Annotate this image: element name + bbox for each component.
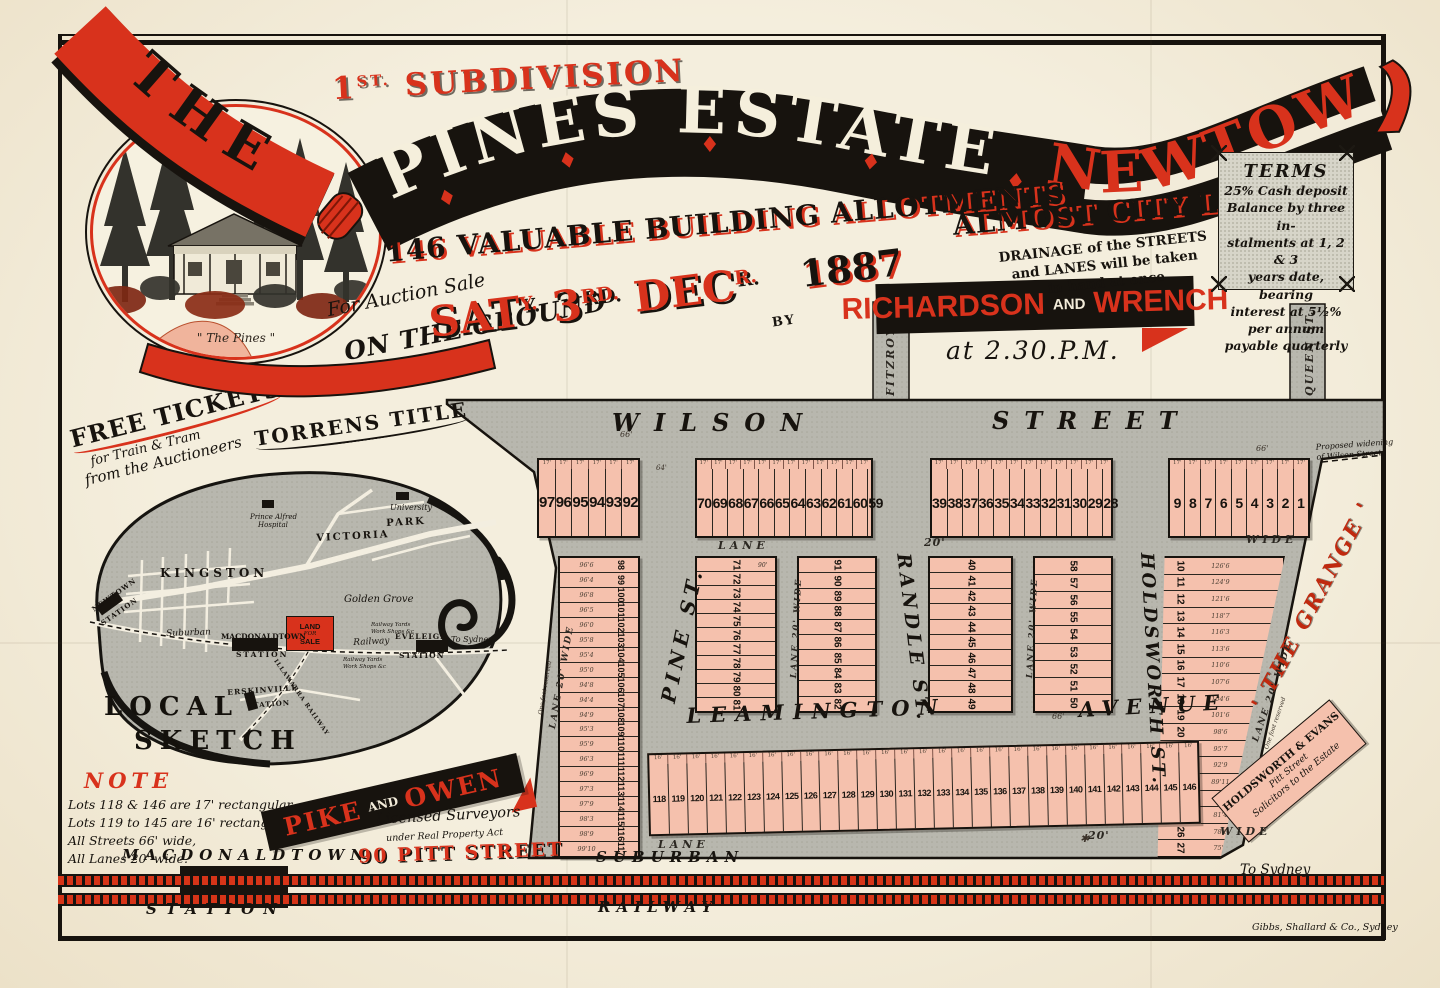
- lot-29: 29: [1087, 469, 1103, 536]
- street-label: STREET: [992, 406, 1192, 435]
- lot-row: 10096'8: [560, 587, 638, 602]
- lot-98: 98: [616, 560, 626, 570]
- lot-110: 110: [616, 737, 626, 752]
- lot-width-marks: 17'17'17'17'17'17': [539, 460, 638, 469]
- terms-line: 25% Cash deposit: [1223, 182, 1349, 199]
- frame-right: [1381, 34, 1386, 940]
- lot-93: 93: [605, 469, 622, 536]
- lot-dimension: 95'8: [579, 636, 593, 644]
- lot-7: 7: [1200, 469, 1215, 536]
- lot-row: 79: [697, 669, 775, 683]
- to-sydney-sketch-label: To Sydney: [451, 635, 493, 644]
- auction-poster: LAND FOR SALE UniversityPrince AlfredHos…: [0, 0, 1440, 988]
- lot-row: 53: [1035, 643, 1111, 660]
- lot-96: 96: [555, 469, 572, 536]
- prince-alfred-sketch-label: Prince Alfred: [250, 513, 297, 521]
- lot-dimension: 124'9: [1211, 578, 1229, 586]
- vignette-caption: " The Pines ": [197, 331, 275, 345]
- lot-100: 100: [616, 587, 626, 602]
- lot-124: 124: [762, 761, 783, 831]
- lot-120: 120: [686, 763, 707, 833]
- lot-130: 130: [876, 759, 897, 829]
- lot-26: 26: [1174, 826, 1185, 837]
- 66-label: 66': [1256, 444, 1268, 453]
- lot-row: 10794'4: [560, 692, 638, 707]
- vignette-house: [168, 214, 302, 306]
- lot-dimension: 94'8: [579, 681, 593, 689]
- wide-label: WIDE: [1246, 533, 1297, 546]
- lot-125: 125: [781, 761, 802, 831]
- vignette-ring: [92, 106, 380, 358]
- lot-dimension: 99'10: [577, 845, 595, 853]
- railway-label-station: STATION: [146, 900, 286, 918]
- lot-40: 40: [965, 560, 976, 571]
- lot-row: 51: [1035, 677, 1111, 694]
- lot-118: 118: [649, 764, 669, 834]
- lot-86: 86: [832, 637, 843, 648]
- lot-64: 64: [789, 469, 805, 536]
- lot-block-pine-west-column: 9896'69996'410096'810196'510296'010395'8…: [558, 556, 640, 858]
- lot-131: 131: [895, 758, 916, 828]
- lot-63: 63: [805, 469, 821, 536]
- lot-105: 105: [616, 662, 626, 677]
- lot-129: 129: [857, 759, 878, 829]
- lot-block-wilson-row-west: 17'17'17'17'17'17'979695949392: [537, 458, 640, 538]
- lot-111: 111: [616, 752, 626, 766]
- lot-95: 95: [571, 469, 588, 536]
- lot-139: 139: [1046, 755, 1067, 825]
- lot-dimension: 92'9: [1213, 761, 1227, 769]
- lot-116: 116: [616, 827, 626, 842]
- svg-text:♦: ♦: [555, 147, 580, 176]
- lot-115: 115: [616, 812, 626, 827]
- lot-101: 101: [616, 602, 626, 617]
- lot-43: 43: [965, 606, 976, 617]
- lot-block-wilson-row-pine-randle: 17'17'17'17'17'17'17'17'17'17'17'17'7069…: [695, 458, 873, 538]
- lot-79: 79: [731, 671, 742, 682]
- land-for-sale-line: LAND: [300, 622, 321, 631]
- lot-55: 55: [1068, 612, 1079, 623]
- lot-1: 1: [1293, 469, 1308, 536]
- railway-track: [58, 874, 1384, 887]
- university-block: [396, 492, 409, 500]
- lot-66: 66: [758, 469, 774, 536]
- lot-138: 138: [1027, 755, 1048, 825]
- lot-103: 103: [616, 632, 626, 647]
- lot-dimension: 110'6: [1211, 661, 1229, 669]
- sale-time: at 2.30.P.M.: [946, 336, 1120, 365]
- lot-104: 104: [616, 647, 626, 662]
- lot-4: 4: [1246, 469, 1261, 536]
- lot-8: 8: [1184, 469, 1199, 536]
- terms-lines: 25% Cash depositBalance by three in-stal…: [1223, 182, 1349, 355]
- lot-99: 99: [616, 575, 626, 585]
- lot-38: 38: [947, 469, 963, 536]
- note-line: All Lanes 20' wide.: [68, 850, 297, 868]
- lot-44: 44: [965, 621, 976, 632]
- lot-dimension: 96'3: [579, 755, 593, 763]
- lot-row: 89: [799, 588, 875, 603]
- wilson-label: WILSON: [612, 408, 817, 437]
- lot-row: 85: [799, 649, 875, 664]
- lot-122: 122: [724, 762, 745, 832]
- terms-line: interest at 5½% per annum: [1223, 303, 1349, 338]
- lot-row: 14116'3: [1147, 623, 1283, 640]
- lot-block-randle-lane-block: 40414243444546474849: [928, 556, 1013, 713]
- lot-80: 80: [731, 685, 742, 696]
- lot-49: 49: [965, 698, 976, 709]
- station-sketch-label: STATION: [236, 650, 288, 659]
- lot-row: 9996'4: [560, 572, 638, 587]
- lot-row: 91: [799, 558, 875, 572]
- printer-credit: Gibbs, Shallard & Co., Sydney: [1252, 922, 1398, 933]
- lot-row: 43: [930, 603, 1011, 618]
- lot-121: 121: [705, 763, 726, 833]
- lot-45: 45: [965, 637, 976, 648]
- lot-68: 68: [727, 469, 743, 536]
- vignette-outer-ring: [86, 100, 386, 364]
- lot-91: 91: [832, 560, 843, 571]
- lot-87: 87: [832, 621, 843, 632]
- sale-month-sup: R.: [733, 265, 758, 290]
- lot-134: 134: [951, 757, 972, 827]
- the-ribbon-roll: [312, 187, 368, 244]
- station-sketch-label: STATION: [399, 651, 444, 660]
- lot-109: 109: [616, 722, 626, 737]
- lot-row: 74: [697, 599, 775, 613]
- lot-92: 92: [621, 469, 638, 536]
- lot-width-marks: 17'17'17'17'17'17'17'17'17'17'17'17': [697, 460, 871, 469]
- auctioneer-and: AND: [1053, 295, 1086, 313]
- lot-row: 10694'8: [560, 677, 638, 692]
- lot-85: 85: [832, 652, 843, 663]
- victoria-sketch-label: VICTORIA: [316, 529, 390, 544]
- lot-dimension: 118'7: [1211, 612, 1229, 620]
- lot-97: 97: [539, 469, 555, 536]
- lot-row: 11698'9: [560, 826, 638, 841]
- macdonaldtown-sketch-label: MACDONALDTOWN: [221, 632, 306, 641]
- lot-row: 80: [697, 683, 775, 697]
- lot-135: 135: [970, 757, 991, 827]
- garden-path: [140, 321, 252, 358]
- lot-88: 88: [832, 606, 843, 617]
- lot-dimension: 95'0: [579, 666, 593, 674]
- lot-62: 62: [821, 469, 837, 536]
- lot-row: 73: [697, 585, 775, 599]
- kingston-sketch-label: KINGSTON: [160, 566, 268, 580]
- lot-11: 11: [1174, 577, 1185, 588]
- lot-61: 61: [836, 469, 852, 536]
- lot-row: 10894'9: [560, 707, 638, 722]
- railway-yards-sketch-label: Railway Yards: [343, 657, 382, 663]
- lot-row: 56: [1035, 591, 1111, 608]
- lot-14: 14: [1174, 627, 1185, 638]
- railway-label-railway: RAILWAY: [598, 898, 718, 916]
- lot-block-wilson-row-east: 17'17'17'17'17'17'17'17'17'987654321: [1168, 458, 1310, 538]
- lot-block-lane-holdsworth-block: 585756555453525150: [1033, 556, 1113, 713]
- lot-row: 75: [697, 613, 775, 627]
- lot-block-lane-randle-block: 91908988878685848382: [797, 556, 877, 713]
- svg-text:THE: THE: [117, 39, 293, 190]
- lot-72: 72: [731, 573, 742, 584]
- by-word: BY: [771, 312, 797, 330]
- lot-17: 17: [1174, 677, 1185, 688]
- university-sketch-label: University: [390, 503, 432, 512]
- lot-32: 32: [1040, 469, 1056, 536]
- frame-top-thin: [58, 34, 1384, 36]
- lot-block-wilson-row-randle-holdsworth: 17'17'17'17'17'17'17'17'17'17'17'17'3938…: [930, 458, 1113, 538]
- lot-row: 45: [930, 634, 1011, 649]
- lot-142: 142: [1103, 754, 1124, 824]
- lot-15: 15: [1174, 643, 1185, 654]
- lot-dimension: 98'6: [1213, 728, 1227, 736]
- note-lines: Lots 118 & 146 are 17' rectangular.Lots …: [68, 796, 297, 869]
- lot-dimension: 98'9: [579, 830, 593, 838]
- lot-row: 10196'5: [560, 602, 638, 617]
- terms-line: stalments at 1, 2 & 3: [1223, 234, 1349, 269]
- the-ribbon-text: THE: [117, 39, 293, 190]
- lot-row: 76: [697, 627, 775, 641]
- lot-133: 133: [932, 757, 953, 827]
- lot-53: 53: [1068, 646, 1079, 657]
- lot-3: 3: [1262, 469, 1277, 536]
- lot-row: 11497'9: [560, 796, 638, 811]
- lot-46: 46: [965, 652, 976, 663]
- lot-row: 58: [1035, 558, 1111, 574]
- note-line: All Streets 66' wide,: [68, 832, 297, 850]
- railway-sketch-label: Railway: [353, 636, 390, 648]
- lot-row: 54: [1035, 625, 1111, 642]
- lot-37: 37: [962, 469, 978, 536]
- the-ribbon: [80, 30, 320, 205]
- lot-row: 77: [697, 641, 775, 655]
- terms-line: years date, bearing: [1223, 268, 1349, 303]
- lot-row: 72: [697, 571, 775, 585]
- hospital-sketch-label: Hospital: [258, 521, 288, 529]
- red-underscroll: [140, 340, 495, 396]
- lot-137: 137: [1008, 756, 1029, 826]
- lot-row: 12121'6: [1147, 590, 1283, 607]
- lot-20: 20: [1174, 726, 1185, 737]
- lot-74: 74: [731, 601, 742, 612]
- auctioneer-banner-tail: [1142, 328, 1188, 352]
- lot-row: 88: [799, 603, 875, 618]
- lot-dimension: 121'6: [1211, 595, 1229, 603]
- lot-dimension: 96'9: [579, 770, 593, 778]
- lot-67: 67: [743, 469, 759, 536]
- svg-text:NEWTOWN: NEWTOWN: [0, 0, 1375, 207]
- 66-label: 66': [620, 430, 632, 439]
- subdivision-heading: 1ST. SUBDIVISION: [331, 53, 686, 107]
- lot-row: 84: [799, 665, 875, 680]
- lot-row: 11095'9: [560, 736, 638, 751]
- lot-dimension: 113'6: [1211, 645, 1229, 653]
- 20-label: 20': [924, 536, 946, 549]
- frame-left: [58, 34, 62, 940]
- lot-33: 33: [1024, 469, 1040, 536]
- work-shops-c-sketch-label: Work Shops &c: [343, 664, 386, 670]
- lot-row: 47: [930, 665, 1011, 680]
- lot-75: 75: [731, 615, 742, 626]
- lot-row: 41: [930, 572, 1011, 587]
- lot-39: 39: [932, 469, 947, 536]
- wide-label: WIDE: [1220, 825, 1271, 838]
- lot-70: 70: [697, 469, 712, 536]
- lot-128: 128: [838, 760, 859, 830]
- lot-123: 123: [743, 762, 764, 832]
- lot-73: 73: [731, 587, 742, 598]
- lot-width-marks: 17'17'17'17'17'17'17'17'17'17'17'17': [932, 460, 1111, 469]
- 20-label: 20': [1088, 829, 1110, 842]
- lot-dimension: 96'8: [579, 591, 593, 599]
- svg-text:♦: ♦: [700, 133, 720, 158]
- sale-day-sup: Y.: [518, 292, 538, 316]
- lot-row: 11598'3: [560, 811, 638, 826]
- lot-65: 65: [774, 469, 790, 536]
- lot-57: 57: [1068, 578, 1079, 589]
- lot-dimension: 96'5: [579, 606, 593, 614]
- subdivision-word: SUBDIVISION: [404, 53, 686, 104]
- lot-dimension: 94'4: [579, 696, 593, 704]
- terms-line: Balance by three in-: [1223, 199, 1349, 234]
- lot-dimension: 126'6: [1211, 562, 1229, 570]
- lot-107: 107: [616, 692, 626, 707]
- lot-77: 77: [731, 643, 742, 654]
- lot-56: 56: [1068, 595, 1079, 606]
- lot-block-leamington-row: 16'16'16'16'16'16'16'16'16'16'16'16'16'1…: [647, 741, 1201, 837]
- local-sketch-label: LOCAL: [104, 692, 239, 722]
- lot-47: 47: [965, 667, 976, 678]
- fold-crease: [1150, 0, 1152, 988]
- lot-row: 55: [1035, 608, 1111, 625]
- svg-text:♦: ♦: [434, 184, 460, 214]
- sale-day-word: SAT: [426, 287, 523, 347]
- park-sketch-label: PARK: [386, 516, 426, 529]
- lot-row: 15113'6: [1147, 640, 1283, 657]
- svg-text:♦: ♦: [859, 149, 882, 177]
- lot-row: 40: [930, 558, 1011, 572]
- lot-dimension: 95'9: [579, 740, 593, 748]
- lot-dimension: 107'6: [1211, 678, 1229, 686]
- vignette-scene: " The Pines ": [90, 105, 385, 360]
- lot-76: 76: [731, 629, 742, 640]
- lot-5: 5: [1231, 469, 1246, 536]
- lot-row: 11124'9: [1147, 574, 1283, 591]
- lot-dimension: 96'6: [579, 561, 593, 569]
- lot-row: 11296'9: [560, 766, 638, 781]
- lot-140: 140: [1065, 754, 1086, 824]
- lot-83: 83: [832, 683, 843, 694]
- lot-row: 9896'6: [560, 558, 638, 572]
- lot-108: 108: [616, 707, 626, 722]
- lot-width-marks: 17'17'17'17'17'17'17'17'17': [1170, 460, 1308, 469]
- frame-top: [58, 40, 1384, 45]
- suburban-sketch-label: Suburban: [166, 627, 211, 639]
- sale-day-ordinal: RD.: [579, 282, 620, 308]
- lot-row: 13118'7: [1147, 607, 1283, 624]
- lot-row: 11196'3: [560, 751, 638, 766]
- railway-yards-sketch-label: Railway Yards: [371, 622, 410, 628]
- lot-row: 90: [799, 572, 875, 587]
- lot-31: 31: [1056, 469, 1072, 536]
- lot-dimension: 95'4: [579, 651, 593, 659]
- lot-58: 58: [1068, 560, 1079, 571]
- to-sydney-label: To Sydney: [1240, 862, 1310, 878]
- sketch-sketch-label: SKETCH: [134, 726, 302, 756]
- lot-90: 90: [832, 575, 843, 586]
- lot-132: 132: [913, 758, 934, 828]
- lot-dimension: 95'7: [1213, 745, 1227, 753]
- terms-title: TERMS: [1223, 161, 1349, 182]
- frame-bottom: [58, 936, 1385, 941]
- 64-label: 64': [656, 464, 667, 472]
- lot-row: 10995'3: [560, 721, 638, 736]
- lot-dimension: 97'3: [579, 785, 593, 793]
- lot-114: 114: [616, 797, 626, 812]
- lot-dimension: 116'3: [1211, 628, 1229, 636]
- golden-grove-sketch-label: Golden Grove: [344, 594, 414, 605]
- lot-60: 60: [852, 469, 868, 536]
- hospital-block: [262, 500, 274, 508]
- lot-127: 127: [819, 760, 840, 830]
- lot-row: 2775'5: [1147, 839, 1283, 856]
- lot-36: 36: [978, 469, 994, 536]
- lot-row: 10595'0: [560, 662, 638, 677]
- eveleigh-sketch-label: EVELEIGH: [395, 632, 448, 641]
- lot-84: 84: [832, 667, 843, 678]
- lot-dimension: 75'5: [1213, 844, 1227, 852]
- lot-10: 10: [1174, 560, 1185, 571]
- lot-row: 42: [930, 588, 1011, 603]
- 66-label: 66': [1052, 712, 1064, 721]
- lot-6: 6: [1215, 469, 1230, 536]
- lot-51: 51: [1068, 680, 1079, 691]
- lot-28: 28: [1102, 469, 1118, 536]
- lot-78: 78: [731, 657, 742, 668]
- lot-row: 10126'6: [1147, 558, 1283, 574]
- lot-dimension: 96'4: [579, 576, 593, 584]
- lot-50: 50: [1068, 697, 1079, 708]
- lot-59: 59: [867, 469, 883, 536]
- subdivision-ordinal: ST.: [356, 71, 391, 91]
- lot-113: 113: [616, 782, 626, 797]
- lot-48: 48: [965, 683, 976, 694]
- lot-row: 78: [697, 655, 775, 669]
- lot-89: 89: [832, 590, 843, 601]
- lane-label: LANE: [718, 539, 769, 552]
- lot-dimension: 98'3: [579, 815, 593, 823]
- lot-141: 141: [1084, 754, 1105, 824]
- lot-69: 69: [712, 469, 728, 536]
- lot-112: 112: [616, 767, 626, 782]
- lot-row: 44: [930, 619, 1011, 634]
- lot-row: 57: [1035, 574, 1111, 591]
- lot-41: 41: [965, 575, 976, 586]
- lot-94: 94: [588, 469, 605, 536]
- lot-35: 35: [993, 469, 1009, 536]
- lot-54: 54: [1068, 629, 1079, 640]
- lot-row: 87: [799, 619, 875, 634]
- 90-label: 90': [758, 562, 767, 569]
- lot-dimension: 94'9: [579, 711, 593, 719]
- lot-dimension: 96'0: [579, 621, 593, 629]
- lot-row: 46: [930, 649, 1011, 664]
- lot-143: 143: [1122, 753, 1143, 823]
- lot-27: 27: [1174, 843, 1185, 854]
- lot-126: 126: [800, 760, 821, 830]
- lot-row: 11397'3: [560, 781, 638, 796]
- lot-dimension: 95'3: [579, 725, 593, 733]
